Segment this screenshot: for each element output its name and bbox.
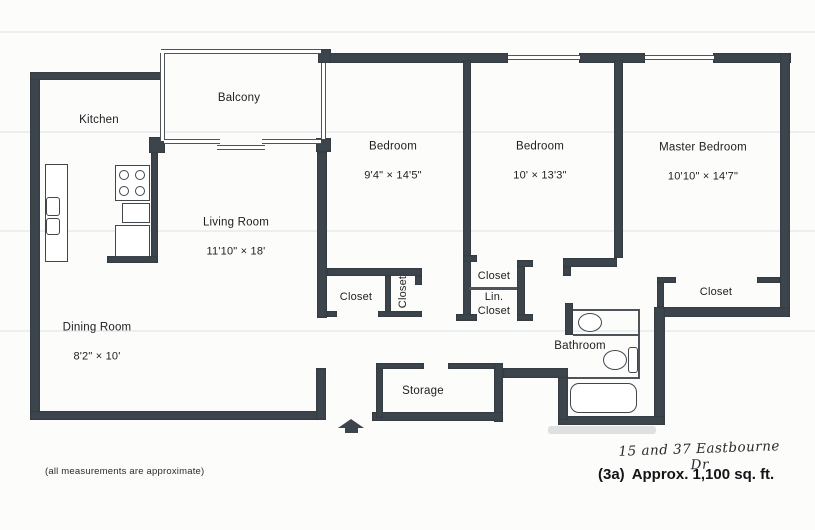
scan-smudge: [548, 426, 656, 434]
room-name: Living Room: [203, 215, 269, 230]
room-label-bathroom: Bathroom: [554, 324, 605, 368]
balcony-rail-bottom: [164, 139, 220, 144]
room-name: Closet: [700, 285, 732, 299]
room-name: Closet: [340, 290, 372, 304]
stove-burner-icon: [135, 170, 145, 180]
wall-closet-stub: [517, 260, 533, 267]
room-label-master-bedroom: Master Bedroom 10'10" × 14'7": [659, 126, 747, 199]
room-name: Kitchen: [79, 113, 119, 128]
room-name: Closet: [396, 276, 410, 308]
wall-kitchen-top: [30, 72, 163, 80]
kitchen-sink-basin: [46, 218, 60, 235]
wall-storage-bottom: [372, 412, 503, 421]
plan-area: Approx. 1,100 sq. ft.: [632, 466, 775, 483]
wall-bathroom-right: [654, 307, 665, 425]
wall-storage-top-right: [448, 363, 495, 369]
room-name: Bedroom: [513, 139, 566, 154]
wall-storage-left: [376, 363, 383, 418]
bathroom-wall-line: [638, 309, 640, 379]
room-label-closet-living: Closet: [340, 276, 372, 318]
room-name: Master Bedroom: [659, 140, 747, 155]
window: [645, 55, 714, 60]
toilet-tank: [628, 347, 638, 373]
floor-plan: Kitchen Balcony Bedroom 9'4" × 14'5" Bed…: [0, 0, 815, 530]
plan-summary: (3a)Approx. 1,100 sq. ft.: [598, 466, 774, 483]
wall-closet-bottom: [378, 311, 422, 317]
wall-living-bedroom1: [317, 152, 327, 318]
measurements-note: (all measurements are approximate): [45, 466, 204, 477]
room-label-balcony: Balcony: [218, 76, 260, 120]
wall-closet-stub: [456, 314, 477, 321]
wall-closet-stub: [757, 277, 780, 283]
wall-entry-stub: [316, 368, 326, 420]
wall-closet-stub: [517, 314, 533, 321]
wall-hallway: [503, 368, 568, 378]
room-name: Bathroom: [554, 339, 605, 354]
balcony-sliding-door: [217, 145, 265, 150]
room-name: Balcony: [218, 91, 260, 106]
wall-kitchen-foot: [107, 256, 158, 263]
room-name: Lin. Closet: [478, 290, 510, 318]
plan-id: (3a): [598, 466, 625, 483]
bathroom-tub-line: [568, 377, 640, 379]
wall-bedroom2-master: [614, 60, 623, 258]
wall-master-door-stub: [563, 267, 571, 276]
room-label-bedroom2: Bedroom 10' × 13'3": [513, 125, 566, 198]
stove-burner-icon: [135, 186, 145, 196]
room-label-closet-bedroom1: Closet: [382, 276, 424, 308]
wall-master-door: [563, 258, 617, 267]
kitchen-sink-basin: [46, 197, 60, 216]
wall-top-block: [579, 53, 645, 63]
balcony-rail-top: [161, 49, 321, 54]
stove-burner-icon: [119, 186, 129, 196]
balcony-rail-left: [160, 53, 165, 141]
scan-line: [0, 31, 815, 33]
wall-left-exterior: [30, 72, 40, 420]
room-label-storage: Storage: [402, 369, 444, 413]
room-dims: 8'2" × 10': [63, 350, 132, 364]
room-label-linen-closet: Lin. Closet: [478, 276, 510, 332]
stove-burner-icon: [119, 170, 129, 180]
room-label-kitchen: Kitchen: [79, 98, 119, 142]
entrance-arrow-icon: [338, 419, 364, 428]
room-label-bedroom1: Bedroom 9'4" × 14'5": [364, 125, 422, 198]
wall-closet-stub: [657, 277, 676, 283]
bathroom-counter-line: [573, 309, 640, 311]
balcony-rail-bottom: [262, 139, 321, 144]
window: [508, 55, 580, 60]
wall-closet-stub: [463, 255, 477, 262]
toilet-bowl: [603, 350, 627, 370]
wall-dining-bottom: [30, 411, 326, 420]
room-label-living-room: Living Room 11'10" × 18': [203, 201, 269, 274]
room-name: Storage: [402, 384, 444, 399]
wall-closet-stub: [327, 311, 337, 317]
entrance-arrow-icon: [345, 428, 358, 433]
room-label-dining-room: Dining Room 8'2" × 10': [63, 306, 132, 379]
wall-right-exterior: [780, 53, 790, 317]
room-dims: 11'10" × 18': [203, 245, 269, 259]
wall-bedroom1-bedroom2: [463, 60, 471, 318]
wall-bathroom-bottom: [558, 416, 665, 425]
balcony-rail-right: [321, 63, 326, 139]
room-dims: 9'4" × 14'5": [364, 169, 422, 183]
room-name: Bedroom: [364, 139, 422, 154]
bathtub: [570, 383, 637, 413]
room-label-closet-master: Closet: [700, 271, 732, 313]
kitchen-counter: [122, 203, 150, 223]
kitchen-counter: [115, 225, 150, 257]
room-name: Dining Room: [63, 320, 132, 335]
wall-kitchen-living: [151, 152, 158, 263]
wall-closet-top: [327, 268, 422, 276]
room-dims: 10'10" × 14'7": [659, 170, 747, 184]
wall-bedroom1-top: [318, 53, 508, 63]
room-dims: 10' × 13'3": [513, 169, 566, 183]
wall-linen-right: [517, 260, 525, 318]
